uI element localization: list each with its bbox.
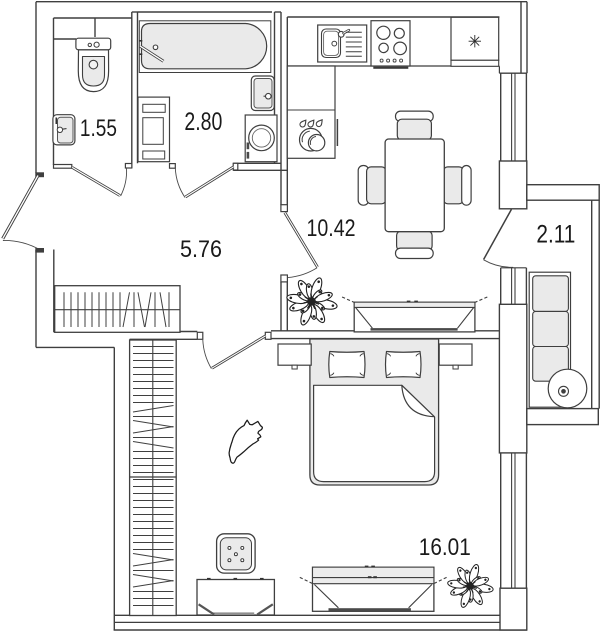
svg-text:2.11: 2.11 [536,220,575,248]
svg-text:2.80: 2.80 [184,108,222,136]
svg-text:1.55: 1.55 [80,115,117,142]
svg-text:16.01: 16.01 [419,534,471,561]
svg-text:10.42: 10.42 [307,215,356,242]
svg-text:5.76: 5.76 [180,236,222,263]
